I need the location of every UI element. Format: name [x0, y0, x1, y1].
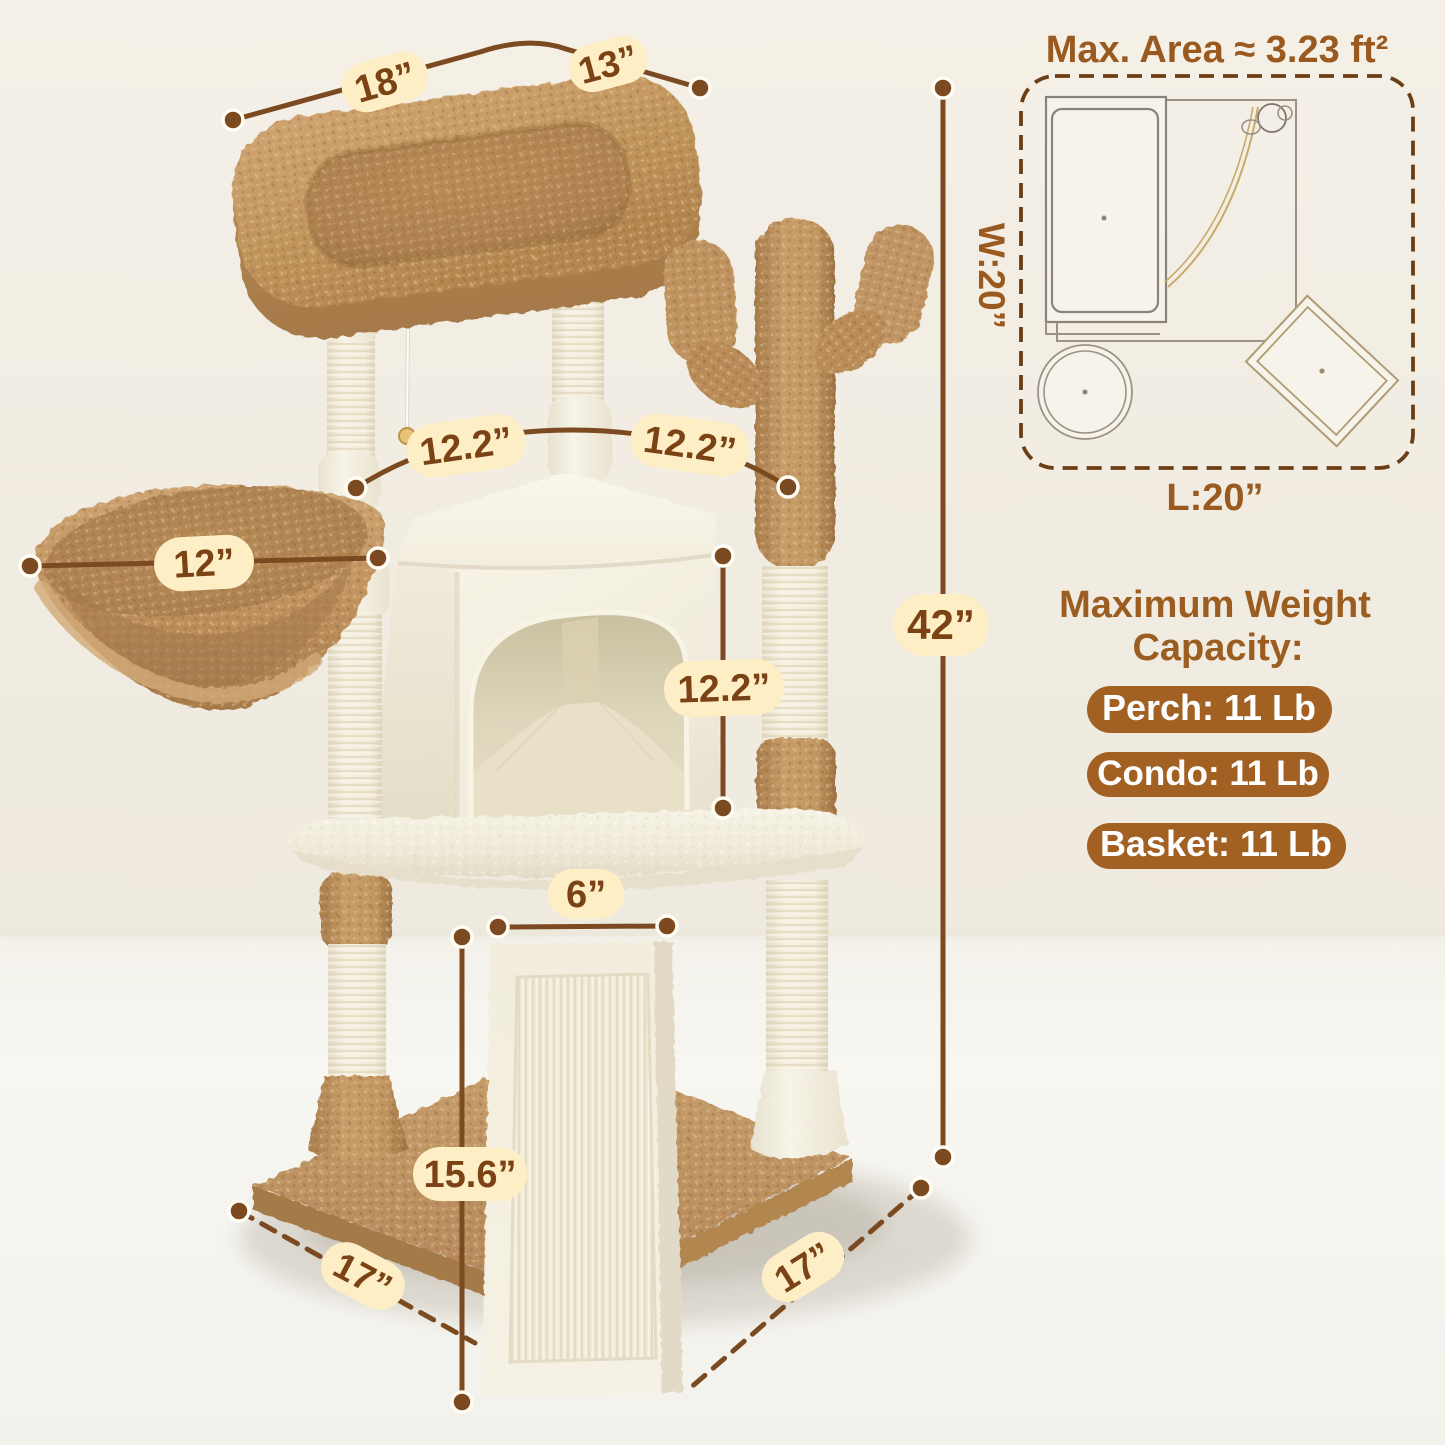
svg-text:Capacity:: Capacity: [1132, 627, 1303, 669]
svg-text:Condo: 11 Lb: Condo: 11 Lb [1097, 754, 1319, 793]
svg-text:Max. Area ≈ 3.23 ft²: Max. Area ≈ 3.23 ft² [1046, 29, 1389, 71]
svg-text:12”: 12” [172, 541, 235, 586]
svg-text:W:20”: W:20” [971, 223, 1012, 329]
svg-text:15.6”: 15.6” [424, 1154, 517, 1196]
svg-text:L:20”: L:20” [1166, 477, 1263, 519]
svg-text:Perch: 11 Lb: Perch: 11 Lb [1102, 687, 1316, 728]
svg-text:6”: 6” [566, 874, 606, 916]
svg-text:Maximum Weight: Maximum Weight [1059, 584, 1371, 626]
svg-text:12.2”: 12.2” [677, 666, 771, 711]
svg-text:42”: 42” [907, 601, 975, 648]
svg-text:Basket: 11 Lb: Basket: 11 Lb [1100, 823, 1332, 864]
